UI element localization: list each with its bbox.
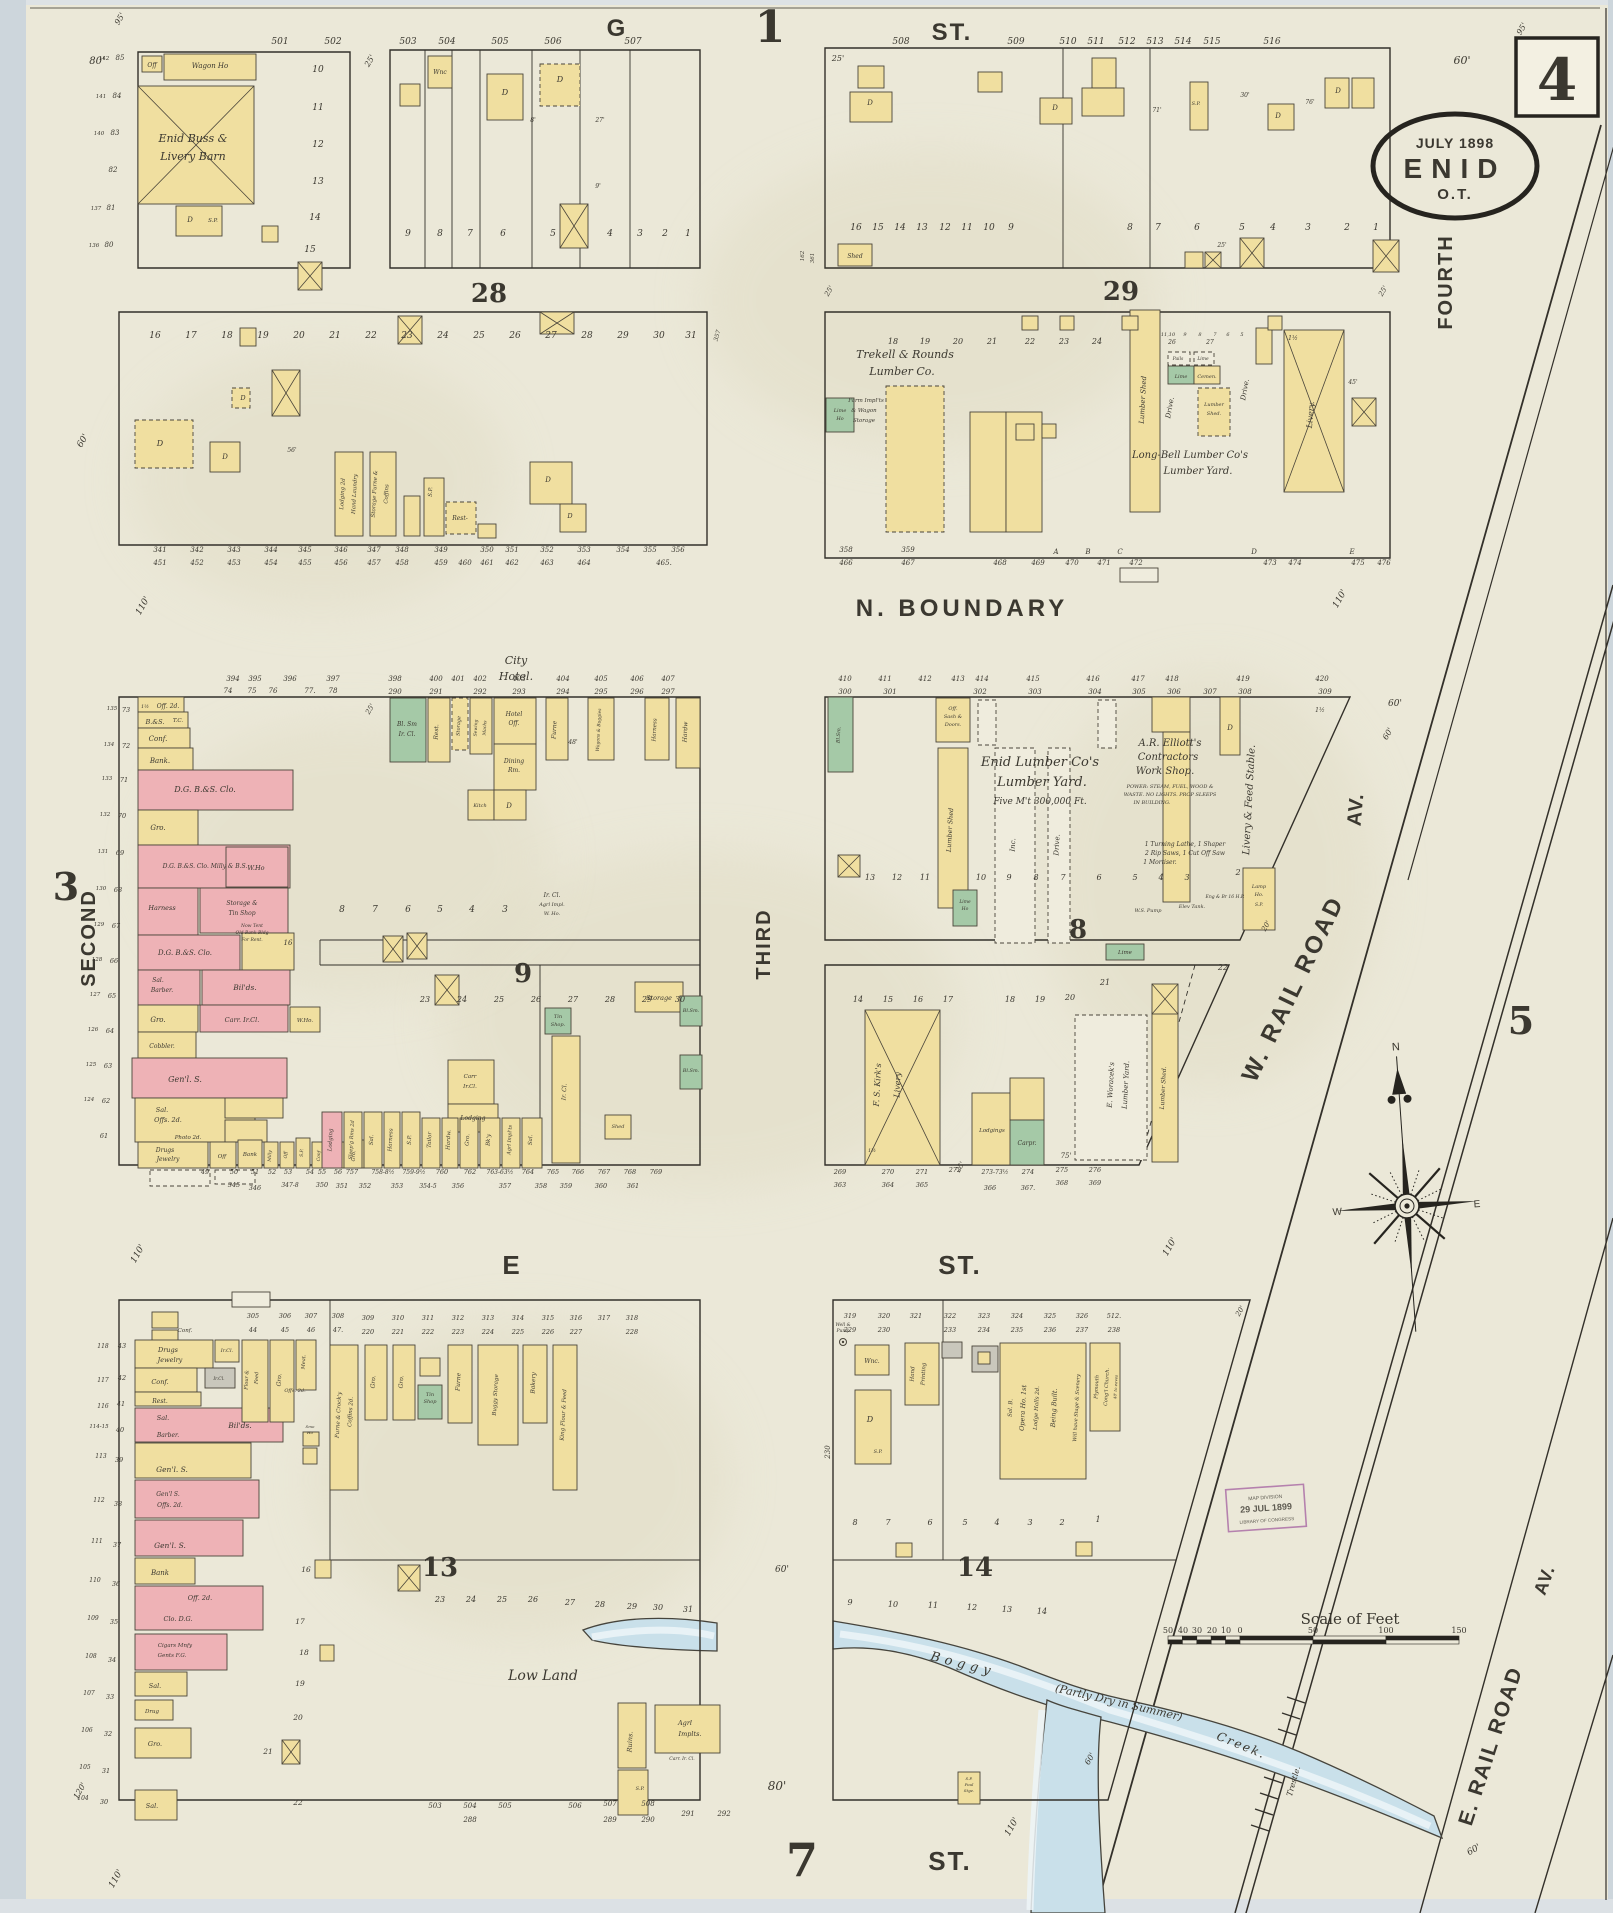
map-label: 60' [775, 1565, 789, 1575]
map-label: Ir.Cl. [212, 1376, 225, 1382]
map-label: 16 [284, 939, 293, 947]
map-label: S.P. [407, 1135, 414, 1145]
map-label: 304 [1088, 688, 1101, 696]
map-label: Pails [1172, 356, 1184, 362]
map-label: 30' [1240, 92, 1250, 99]
map-label: 107 [83, 1690, 95, 1697]
map-label: 4 [1157, 873, 1163, 882]
building [1098, 700, 1116, 748]
building [1016, 424, 1034, 440]
map-label: Hand [910, 1366, 917, 1383]
scale-cell [1168, 1640, 1182, 1644]
building [138, 810, 198, 845]
map-label: 60' [1388, 699, 1402, 709]
map-label: Ho [835, 416, 843, 422]
map-label: Conf [316, 1149, 323, 1161]
map-label: 506 [544, 37, 561, 47]
page-edge [0, 0, 26, 1913]
building [135, 420, 193, 468]
map-label: 400 [428, 675, 443, 683]
map-label: Bl. Sm [396, 721, 417, 728]
map-label: 22 [292, 1798, 303, 1807]
map-label: Bl.Sm. [682, 1068, 700, 1074]
map-label: 30 [653, 331, 665, 341]
map-label: 26 [1167, 339, 1176, 346]
map-label: Ir.Cl. [462, 1084, 477, 1090]
building [1152, 697, 1190, 732]
map-label: Ir.Cl. [220, 1348, 234, 1354]
map-label: 410 [837, 675, 852, 683]
map-label: 358 [839, 546, 853, 554]
map-label: 236 [1043, 1326, 1056, 1334]
building [978, 1352, 990, 1364]
map-label: 20 [1064, 993, 1075, 1002]
map-label: 61 [100, 1132, 108, 1140]
map-label: 46 [306, 1326, 315, 1334]
map-label: Storage & [226, 900, 258, 907]
building [315, 1560, 331, 1578]
map-label: 511 [1087, 37, 1104, 47]
map-label: 19 [257, 331, 269, 341]
map-label: 9 [405, 229, 411, 239]
map-label: 11 [961, 223, 972, 233]
scale-cell [1197, 1640, 1211, 1644]
map-label: 80' [89, 56, 104, 67]
map-label: 62 [102, 1097, 110, 1105]
map-label: 3 [1305, 223, 1311, 233]
scale-cell [1386, 1640, 1459, 1644]
map-label: 510 [1059, 37, 1076, 47]
map-label: 505 [498, 1802, 512, 1810]
map-label: 320 [878, 1312, 890, 1320]
map-label: 512 [1118, 37, 1135, 47]
map-label: D.G. B.&S. Clo. [157, 949, 212, 957]
map-label: 302 [973, 688, 987, 696]
map-label: 21 [986, 337, 997, 346]
map-label: 10 [983, 223, 995, 233]
map-label: 411 [877, 675, 891, 683]
building [655, 1705, 720, 1753]
map-label: 21 [1099, 978, 1110, 987]
map-label: D [866, 1415, 874, 1424]
map-label: 6 [927, 1518, 932, 1527]
building [970, 412, 1006, 532]
map-label: 23 [434, 1595, 445, 1604]
map-label: Flour & [243, 1369, 250, 1391]
map-label: 230 [824, 1445, 832, 1460]
map-label: 80' [768, 1779, 787, 1793]
map-label: & Wagon [851, 408, 877, 414]
building [1076, 1542, 1092, 1556]
map-label: 473 [1262, 559, 1277, 567]
map-label: 407 [660, 675, 675, 683]
map-label: 8 [437, 229, 443, 239]
map-label: 403 [511, 675, 526, 683]
map-label: 461 [479, 559, 493, 567]
map-label: Sal. [152, 977, 164, 984]
map-label: E [502, 1250, 521, 1280]
map-label: Ir. Cl. [543, 892, 561, 899]
map-label: ST. [932, 19, 973, 46]
scale-cell [1182, 1640, 1196, 1644]
map-label: 419 [1235, 675, 1250, 683]
map-label: 15 [883, 995, 893, 1004]
map-label: 508 [892, 37, 909, 47]
map-label: Sal. [149, 1682, 161, 1690]
building [424, 478, 444, 536]
map-label: 515 [1203, 37, 1220, 47]
map-label: 305 [247, 1312, 259, 1320]
map-label: Gro. [370, 1375, 378, 1389]
map-label: 1½ [868, 1147, 876, 1154]
building [330, 1345, 358, 1490]
map-label: D [1334, 87, 1341, 95]
map-label: 506 [568, 1802, 582, 1810]
map-label: Hardw. [445, 1130, 452, 1152]
map-label: 472 [1128, 559, 1143, 567]
block-number: 8 [1069, 915, 1087, 945]
map-label: 113 [95, 1453, 107, 1460]
map-label: 83 [111, 129, 120, 137]
map-label: Gro. [150, 1016, 165, 1024]
map-label: Sash & [944, 714, 963, 720]
map-label: 318 [626, 1314, 638, 1322]
map-label: Kitch [472, 803, 486, 809]
map-label: Pump [835, 1328, 849, 1334]
map-label: 18 [1005, 995, 1015, 1004]
map-label: 508 [641, 1800, 655, 1808]
map-label: Lime [1174, 374, 1188, 380]
map-label: 117 [97, 1377, 109, 1384]
building [1092, 58, 1116, 88]
map-label: Cobbler. [149, 1043, 175, 1050]
map-label: 292 [716, 1810, 731, 1818]
map-label: 220 [361, 1328, 374, 1336]
building [225, 1098, 283, 1118]
map-label: 316 [570, 1314, 582, 1322]
map-label: Lodgings [978, 1128, 1005, 1134]
map-label: 43 [117, 1342, 126, 1350]
building [1268, 316, 1282, 330]
map-label: 20 [292, 331, 305, 341]
map-label: A [1052, 548, 1058, 556]
map-label: Lumber [1203, 402, 1224, 408]
map-label: 11 [920, 873, 930, 882]
map-label: 30 [100, 1798, 108, 1806]
map-label: D [556, 75, 564, 84]
map-label: 237 [1075, 1326, 1089, 1334]
map-label: W.S. Pump [1135, 908, 1163, 914]
map-label: 60' [1453, 54, 1470, 67]
map-label: 509 [1007, 37, 1024, 47]
map-label: 7 [467, 229, 473, 239]
map-label: 303 [1028, 688, 1042, 696]
map-label: 35 [110, 1618, 118, 1626]
map-label: 64 [106, 1027, 114, 1035]
map-label: Conf. [151, 1378, 168, 1386]
map-label: 72 [122, 742, 130, 750]
map-label: Offs. 2d. [157, 1502, 183, 1509]
map-label: D [1274, 112, 1281, 120]
building [978, 72, 1002, 92]
map-label: S.P. [636, 1786, 645, 1792]
map-label: 455 [297, 559, 312, 567]
map-label: Off. [948, 706, 958, 712]
map-label: 75' [1061, 1152, 1072, 1160]
building [400, 84, 420, 106]
map-label: 2 Rip Saws, 1 Cut Off Saw [1144, 850, 1226, 857]
map-label: 14 [1037, 1607, 1047, 1616]
map-label: 41 [116, 1400, 125, 1408]
building [1010, 1078, 1044, 1120]
map-label: 20 [952, 337, 963, 346]
map-label: 70 [118, 812, 126, 820]
map-label: 765 [547, 1168, 559, 1176]
map-label: 31 [683, 1605, 693, 1614]
map-label: Sal. [156, 1106, 168, 1114]
map-label: 504 [438, 37, 455, 47]
map-label: S.P. [299, 1148, 305, 1157]
map-label: 17 [185, 331, 197, 341]
map-label: 321 [910, 1312, 922, 1320]
map-label: Bk'y [486, 1133, 493, 1147]
map-label: 305 [1132, 688, 1146, 696]
map-label: Lodging [460, 1115, 486, 1122]
building [530, 462, 572, 504]
building [132, 1058, 287, 1098]
map-label: 476 [1376, 559, 1391, 567]
map-label: Gro. [276, 1373, 284, 1387]
map-label: Agrl Impl. [538, 902, 565, 908]
building [478, 524, 496, 538]
map-label: 274 [1021, 1168, 1034, 1176]
map-label: B.&S. [145, 718, 165, 726]
block-number: 1 [755, 2, 786, 53]
map-label: Lime [1196, 356, 1209, 362]
map-label: 22 [1024, 337, 1035, 346]
map-label: 412 [917, 675, 932, 683]
compass-east-label: E [1473, 1199, 1481, 1210]
map-label: 22 [1217, 963, 1228, 972]
map-label: Off. 2d. [157, 703, 180, 710]
map-label: Lumber Co. [868, 365, 934, 378]
map-label: 24 [1091, 337, 1102, 346]
map-label: 226 [541, 1328, 554, 1336]
map-label: Sal. [528, 1134, 535, 1145]
building [420, 1358, 440, 1376]
map-label: 18 [221, 331, 233, 341]
map-label: 21 [328, 331, 340, 341]
sheet-number-box: 4 [1516, 38, 1598, 116]
map-label: Wnc. [864, 1358, 879, 1365]
block-number: 14 [957, 1553, 993, 1583]
map-label: 28 [594, 1600, 605, 1609]
map-label: Shop [424, 1399, 438, 1405]
scale-cell [1211, 1640, 1225, 1644]
map-label: 352 [359, 1182, 371, 1190]
map-label: 132 [100, 812, 111, 818]
map-label: 356 [452, 1182, 464, 1190]
scale-cell [1313, 1640, 1386, 1644]
map-label: Off. 2d. [188, 1594, 212, 1602]
map-label: 1 [1095, 1515, 1100, 1524]
map-label: Sal. [369, 1134, 376, 1145]
block-number: 29 [1103, 277, 1139, 307]
map-label: 414 [974, 675, 988, 683]
map-label: 228 [625, 1328, 638, 1336]
map-label: 1½ [1288, 335, 1298, 342]
map-label: 306 [1167, 688, 1181, 696]
map-label: 398 [388, 675, 402, 683]
map-label: 26 [527, 1595, 538, 1604]
map-label: 460 [457, 559, 472, 567]
map-label: Old Bank Bldg [236, 930, 269, 936]
map-label: Smo [306, 1424, 316, 1429]
map-label: Rest. [151, 1398, 168, 1405]
building [404, 496, 420, 536]
map-label: 361 [627, 1182, 639, 1190]
map-label: 27' [594, 117, 605, 124]
map-label: 28 [604, 995, 615, 1004]
map-label: 19 [920, 337, 930, 346]
map-label: 5 [1132, 873, 1137, 882]
map-label: 413 [950, 675, 965, 683]
map-label: 27 [567, 995, 579, 1004]
map-label: WASTE. NO LIGHTS. PROP SLEEPS [1124, 792, 1217, 798]
map-label: 13 [312, 177, 324, 187]
map-label: 276 [1088, 1166, 1101, 1174]
map-label: 474 [1287, 559, 1301, 567]
map-label: D [239, 394, 246, 402]
map-label: Drugs [155, 1147, 174, 1154]
map-label: 315 [542, 1314, 554, 1322]
map-label: 18 [299, 1648, 309, 1657]
map-label: 459 [433, 559, 448, 567]
map-label: S.P. [1192, 101, 1201, 107]
map-label: 38 [114, 1500, 122, 1508]
map-label: 271 [915, 1168, 928, 1176]
map-label: 8 [339, 905, 345, 915]
map-label: 470 [1064, 559, 1079, 567]
map-label: D [566, 512, 573, 520]
map-label: Carr. Ir. Cl. [669, 1756, 695, 1762]
building [1256, 328, 1272, 364]
map-label: 758-8½ [371, 1169, 394, 1176]
map-label: 30 [653, 1603, 663, 1612]
map-label: 269 [833, 1168, 846, 1176]
map-label: D [156, 439, 164, 448]
map-label: 18 [888, 337, 898, 346]
map-label: 67 [112, 922, 121, 930]
map-label: 311 [422, 1314, 434, 1322]
map-label: 766 [572, 1168, 584, 1176]
map-label: 1 Turning Lathe, 1 Shaper [1145, 841, 1227, 848]
building [448, 1060, 494, 1104]
map-label: 52 [268, 1168, 276, 1176]
building [390, 698, 426, 762]
map-label: G [607, 15, 628, 42]
scale-tick-label: 50 [1308, 1626, 1318, 1635]
map-label: Offs. 2d. [284, 1388, 306, 1394]
map-label: 467 [900, 559, 915, 567]
map-label: 397 [326, 675, 340, 683]
map-label: 290 [640, 1816, 655, 1824]
title-date: JULY 1898 [1416, 135, 1494, 151]
map-label: 359 [560, 1182, 572, 1190]
map-label: 464 [576, 559, 590, 567]
map-label: Tin [426, 1392, 434, 1398]
map-label: 80 [105, 241, 114, 249]
map-label: 289 [602, 1816, 617, 1824]
block-number: 28 [471, 279, 507, 309]
map-label: 420 [1314, 675, 1329, 683]
well-pump-symbol [842, 1341, 844, 1343]
map-label: 350 [480, 546, 494, 554]
map-label: 55 [318, 1168, 326, 1176]
scale-cell [1182, 1636, 1196, 1640]
building [138, 1142, 208, 1168]
map-label: Conf. [149, 735, 168, 743]
map-label: 47. [332, 1326, 343, 1334]
map-label: 8 [1198, 332, 1201, 338]
map-label: 9 [1008, 223, 1014, 233]
map-label: 358 [535, 1182, 547, 1190]
map-label: Lodging [327, 1128, 334, 1153]
map-label: Carr. Ir.Cl. [225, 1016, 260, 1024]
map-label: 307 [305, 1312, 318, 1320]
map-label: 13 [916, 223, 928, 233]
building [850, 92, 892, 122]
map-label: 234 [977, 1326, 990, 1334]
map-label: Gro. [148, 1740, 162, 1748]
map-label: 501 [271, 37, 288, 47]
building [1185, 252, 1203, 268]
map-label: 1½ [1315, 707, 1325, 714]
map-label: 1 [1373, 223, 1379, 233]
building [135, 1634, 227, 1670]
map-label: 12 [312, 140, 324, 150]
map-label: 468 [992, 559, 1007, 567]
building [135, 1586, 263, 1630]
map-label: Shed [612, 1124, 625, 1130]
map-label: 3 [637, 229, 643, 239]
map-label: 5 [437, 905, 443, 915]
map-label: 73 [122, 706, 130, 714]
map-label: 505 [491, 37, 508, 47]
map-label: 394 [226, 675, 239, 683]
map-label: Tin Shop [228, 910, 255, 917]
map-label: 350 [316, 1181, 328, 1189]
map-label: 40 [115, 1426, 124, 1434]
map-label: Drugs [157, 1346, 179, 1354]
map-label: 2 [1234, 868, 1240, 877]
scale-cell [1226, 1636, 1240, 1640]
map-label: 401 [450, 675, 464, 683]
map-label: 19 [1035, 995, 1045, 1004]
map-label: 84 [113, 92, 122, 100]
map-label: 19 [295, 1679, 305, 1688]
block-number: 7 [786, 1833, 818, 1887]
scale-cell [1211, 1636, 1225, 1640]
map-label: Gen'l. S. [154, 1541, 186, 1550]
map-label: 297 [660, 688, 675, 696]
map-label: 162 [800, 250, 806, 261]
map-label: 346 [334, 546, 348, 554]
map-label: D [1226, 724, 1233, 732]
map-label: 5 [1240, 332, 1243, 338]
map-label: 345 [228, 1181, 240, 1189]
map-label: 475 [1350, 559, 1365, 567]
